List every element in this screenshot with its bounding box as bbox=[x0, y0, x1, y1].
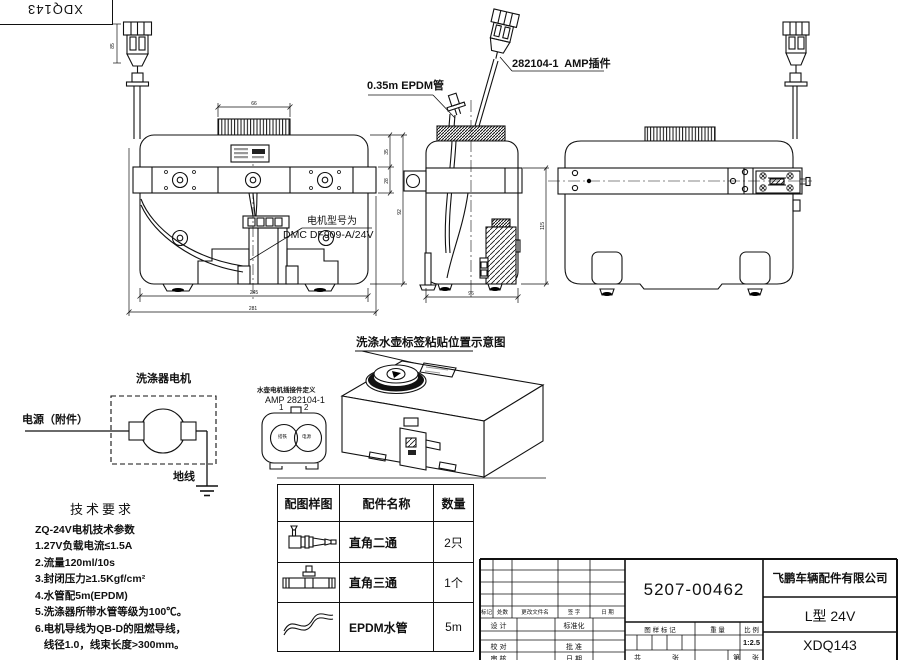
svg-text:96: 96 bbox=[468, 291, 474, 297]
svg-text:245: 245 bbox=[250, 290, 259, 296]
label-diagram-title: 洗涤水壶标签粘贴位置示意图 bbox=[356, 337, 506, 350]
tb-label-scale: 比 例 bbox=[740, 624, 763, 634]
circuit-power-label: 电源（附件） bbox=[22, 414, 88, 426]
tb-label-sheet: 张 bbox=[672, 653, 679, 660]
svg-text:281: 281 bbox=[249, 306, 258, 312]
svg-text:85: 85 bbox=[110, 43, 116, 49]
tech-line: 4.水管配5m(EPDM) bbox=[35, 591, 128, 603]
svg-text:115: 115 bbox=[540, 222, 546, 230]
tb-label-date2: 日 期 bbox=[555, 654, 593, 660]
front-view: 66 bbox=[127, 101, 408, 316]
corner-stamp-code: XDQ143 bbox=[27, 2, 83, 17]
callout-amp-plug: 282104-1 AMP插件 bbox=[512, 58, 611, 70]
model-designation: L型 24V bbox=[763, 606, 897, 626]
pin-1-number: 1 bbox=[279, 404, 283, 413]
callout-epdm-tube: 0.35m EPDM管 bbox=[367, 80, 444, 92]
circuit-ground-label: 地线 bbox=[173, 471, 195, 483]
parts-table: 配图样图 配件名称 数量 直角二通 2只 bbox=[277, 484, 474, 652]
svg-text:28: 28 bbox=[384, 178, 390, 184]
tb-label-sign: 签 字 bbox=[558, 608, 590, 616]
corner-stamp: XDQ143 bbox=[0, 0, 113, 25]
part-name: EPDM水管 bbox=[340, 603, 434, 652]
tech-line: 线径1.0，线束长度>300mm。 bbox=[35, 640, 185, 652]
tech-line: 2.流量120ml/10s bbox=[35, 558, 115, 570]
tb-label-standardize: 标准化 bbox=[555, 621, 593, 631]
left-harness-connector: 85 bbox=[110, 22, 152, 139]
parts-table-header-sample: 配图样图 bbox=[278, 485, 340, 522]
connector-def-part: AMP 282104-1 bbox=[265, 396, 325, 406]
tb-label-design: 设 计 bbox=[480, 621, 517, 631]
company-name: 飞鹏车辆配件有限公司 bbox=[763, 570, 897, 586]
part-name: 直角二通 bbox=[340, 522, 434, 563]
connector-pinout bbox=[262, 407, 326, 469]
tb-label-count: 处数 bbox=[493, 608, 512, 616]
tb-label-mark: 标记 bbox=[480, 608, 493, 616]
connector-def-title: 水壶电机插接件定义 bbox=[257, 387, 316, 394]
pin-1-name: 搭铁 bbox=[278, 435, 287, 440]
scale-value: 1:2.5 bbox=[740, 638, 763, 647]
table-row: EPDM水管 5m bbox=[278, 603, 474, 652]
tb-label-review: 审 核 bbox=[480, 654, 517, 660]
drawing-sheet: 85 66 bbox=[0, 0, 900, 660]
tb-label-sheet2: 张 bbox=[752, 653, 759, 660]
part-qty: 2只 bbox=[434, 522, 474, 563]
part-qty: 1个 bbox=[434, 563, 474, 603]
tb-label-approve: 批 准 bbox=[555, 642, 593, 652]
tb-label-weight: 重 量 bbox=[695, 624, 740, 634]
washer-amp-connector bbox=[471, 9, 604, 140]
part-number: 5207-00462 bbox=[625, 580, 763, 600]
svg-text:92: 92 bbox=[397, 209, 403, 215]
tb-label-drawing-mark: 图 样 标 记 bbox=[625, 624, 695, 634]
tb-label-check: 校 对 bbox=[480, 642, 517, 652]
rear-view bbox=[548, 127, 812, 296]
part-qty: 5m bbox=[434, 603, 474, 652]
side-view: 96 115 bbox=[368, 92, 549, 303]
motor-model: DMC DF909-A/24V bbox=[283, 230, 373, 242]
epdm-hose-icon bbox=[281, 607, 337, 643]
tee-three-way-fitting-icon bbox=[281, 564, 337, 596]
table-row: 直角三通 1个 bbox=[278, 563, 474, 603]
table-row: 直角二通 2只 bbox=[278, 522, 474, 563]
pin-2-name: 电源 bbox=[302, 435, 311, 440]
tech-line: 3.封闭压力≥1.5Kgf/cm² bbox=[35, 574, 145, 586]
parts-table-header-name: 配件名称 bbox=[340, 485, 434, 522]
tb-label-date: 日 期 bbox=[590, 608, 625, 616]
tech-line: 5.洗涤器所带水管等级为100℃。 bbox=[35, 607, 187, 619]
right-harness-connector bbox=[783, 22, 809, 139]
tb-label-changed-file: 更改文件名 bbox=[512, 608, 558, 616]
tech-line: 6.电机导线为QB-D的阻燃导线， bbox=[35, 624, 186, 636]
svg-text:66: 66 bbox=[251, 101, 257, 107]
circuit-motor-label: 洗涤器电机 bbox=[136, 373, 191, 385]
elbow-two-way-fitting-icon bbox=[281, 523, 337, 557]
tb-label-page: 第 bbox=[733, 653, 740, 660]
drawing-number: XDQ143 bbox=[763, 637, 897, 653]
tech-line: 1.27V负载电流≤1.5A bbox=[35, 541, 132, 553]
tb-label-total: 共 bbox=[634, 653, 641, 660]
pin-2-number: 2 bbox=[304, 404, 308, 413]
svg-text:35: 35 bbox=[384, 149, 390, 155]
tech-heading: 技术要求 bbox=[70, 503, 134, 517]
motor-model-caption: 电机型号为 bbox=[307, 216, 357, 227]
parts-table-header-qty: 数量 bbox=[434, 485, 474, 522]
part-name: 直角三通 bbox=[340, 563, 434, 603]
tech-line: ZQ-24V电机技术参数 bbox=[35, 525, 135, 537]
